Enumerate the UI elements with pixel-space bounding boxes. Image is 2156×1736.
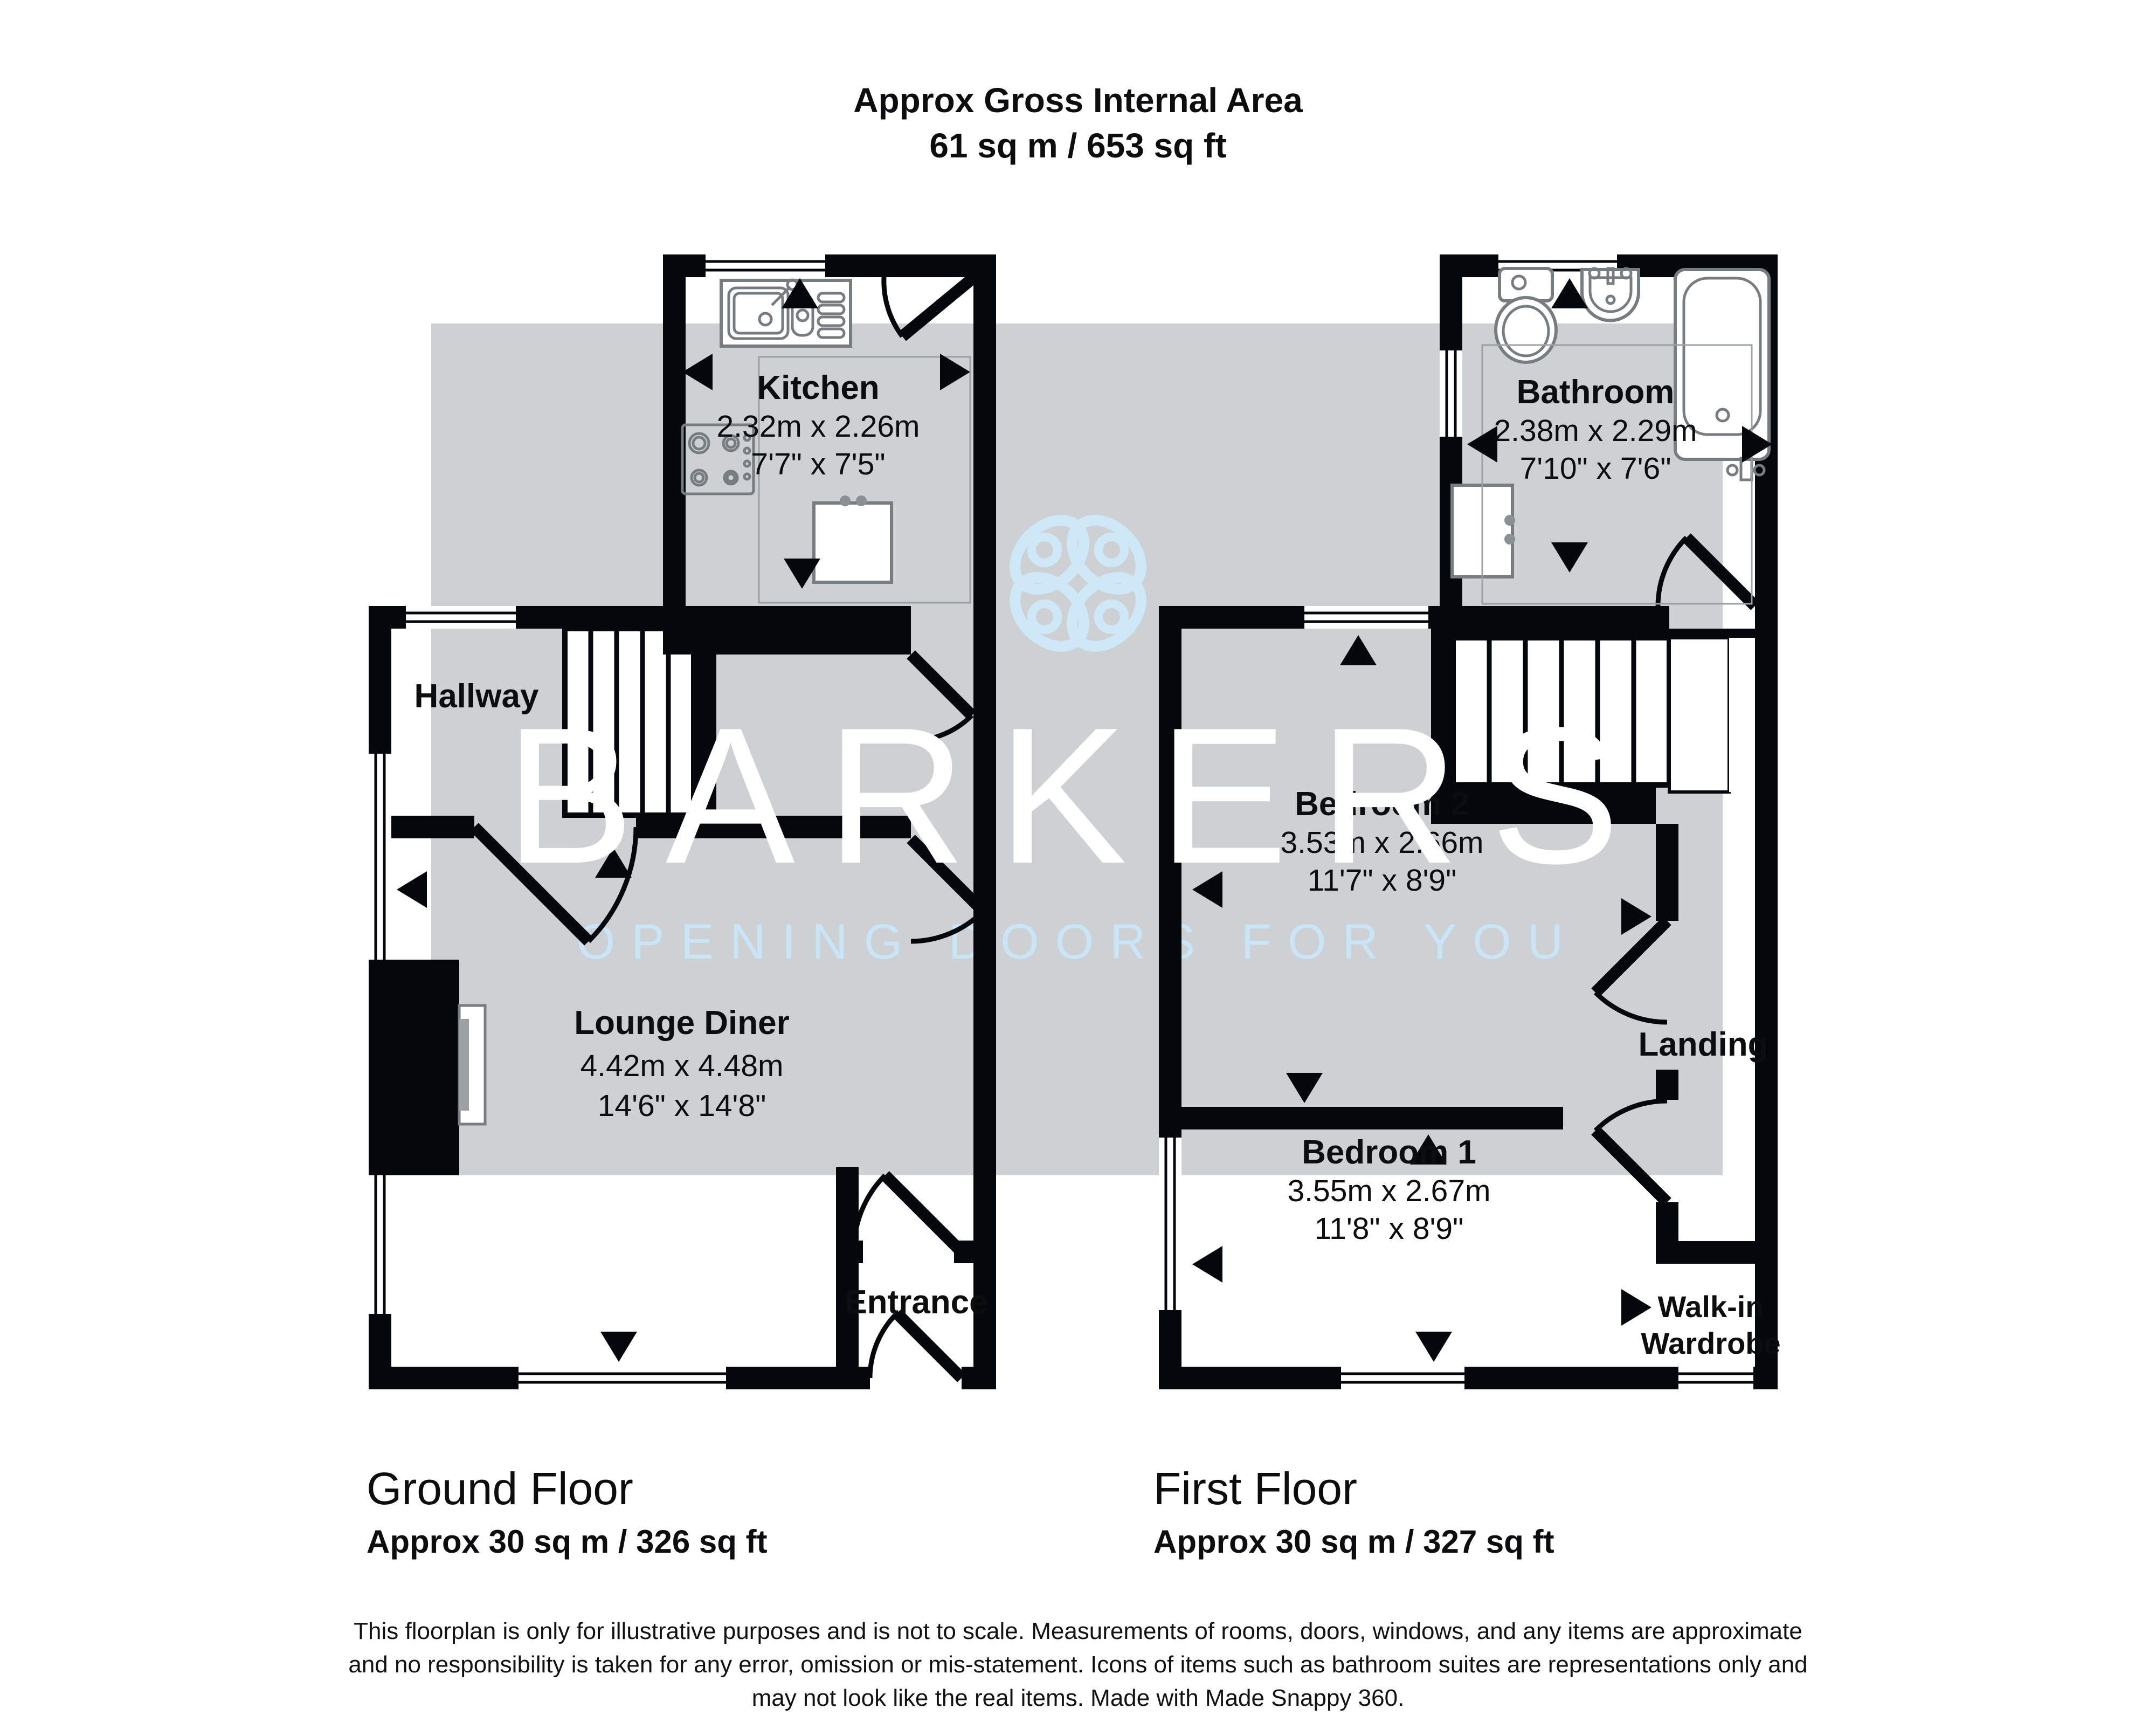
lounge-front-window — [519, 1367, 726, 1389]
bathroom-imperial: 7'10" x 7'6" — [1520, 451, 1671, 486]
arrow-right-wardrobe — [1621, 1289, 1651, 1326]
bedroom1-imperial: 11'8" x 8'9" — [1315, 1211, 1464, 1246]
lounge-metric: 4.42m x 4.48m — [580, 1049, 783, 1083]
arrow-down-bedroom1 — [1415, 1332, 1452, 1362]
landing-label: Landing — [1638, 1026, 1768, 1063]
toilet — [1496, 268, 1556, 362]
disclaimer-line2: and no responsibility is taken for any e… — [348, 1651, 1807, 1678]
first-floor-label: First Floor — [1153, 1463, 1357, 1514]
bathroom-cabinet — [1452, 485, 1515, 577]
kitchen-sink-unit — [721, 280, 851, 346]
basin — [1582, 268, 1639, 321]
bedroom1-metric: 3.55m x 2.67m — [1287, 1174, 1490, 1208]
bedroom2-window — [1304, 606, 1428, 629]
arrow-down-lounge — [600, 1332, 637, 1362]
floorplan-canvas: Approx Gross Internal Area 61 sq m / 653… — [0, 0, 2156, 1736]
disclaimer-line1: This floorplan is only for illustrative … — [354, 1618, 1802, 1644]
kitchen-bottom-wall — [663, 606, 911, 655]
page-title-line2: 61 sq m / 653 sq ft — [929, 126, 1226, 165]
bathroom-side-window — [1440, 350, 1462, 437]
page-title-line1: Approx Gross Internal Area — [853, 81, 1303, 120]
bedroom1-label: Bedroom 1 — [1302, 1134, 1476, 1171]
wardrobe-window — [1678, 1367, 1753, 1389]
lounge-imperial: 14'6" x 14'8" — [598, 1089, 766, 1123]
bathroom-metric: 2.38m x 2.29m — [1494, 414, 1697, 448]
lounge-side-window-upper — [369, 754, 391, 960]
arrow-left-lounge — [397, 871, 427, 908]
disclaimer-line3: may not look like the real items. Made w… — [752, 1685, 1405, 1711]
stair-void — [1729, 638, 1755, 792]
ground-floor-label: Ground Floor — [367, 1463, 633, 1514]
watermark-brand: BARKERS — [505, 687, 1651, 904]
lounge-side-window-lower — [369, 1175, 391, 1314]
bedroom1-side-window — [1159, 1138, 1181, 1310]
first-floor-area: Approx 30 sq m / 327 sq ft — [1153, 1524, 1554, 1560]
kitchen-counter-unit — [814, 495, 892, 582]
bathroom-label: Bathroom — [1517, 374, 1675, 411]
bedroom1-window — [1341, 1367, 1464, 1389]
entrance-label: Entrance — [845, 1284, 987, 1321]
arrow-left-bedroom1 — [1192, 1246, 1222, 1283]
porch-inner-door — [854, 1175, 962, 1252]
front-entrance-door — [870, 1313, 962, 1378]
floorplan-page: Approx Gross Internal Area 61 sq m / 653… — [0, 0, 2156, 1736]
kitchen-metric: 2.32m x 2.26m — [716, 409, 920, 444]
wardrobe-label-line2: Wardrobe — [1641, 1326, 1780, 1360]
ground-floor-area: Approx 30 sq m / 326 sq ft — [367, 1524, 768, 1560]
lounge-label: Lounge Diner — [574, 1004, 790, 1042]
hallway-window — [406, 606, 516, 629]
wardrobe-label-line1: Walk-in — [1657, 1290, 1764, 1324]
kitchen-window — [706, 254, 825, 277]
kitchen-imperial: 7'7" x 7'5" — [751, 447, 885, 481]
kitchen-label: Kitchen — [757, 369, 879, 407]
watermark-tagline: OPENING DOORS FOR YOU — [577, 914, 1579, 969]
